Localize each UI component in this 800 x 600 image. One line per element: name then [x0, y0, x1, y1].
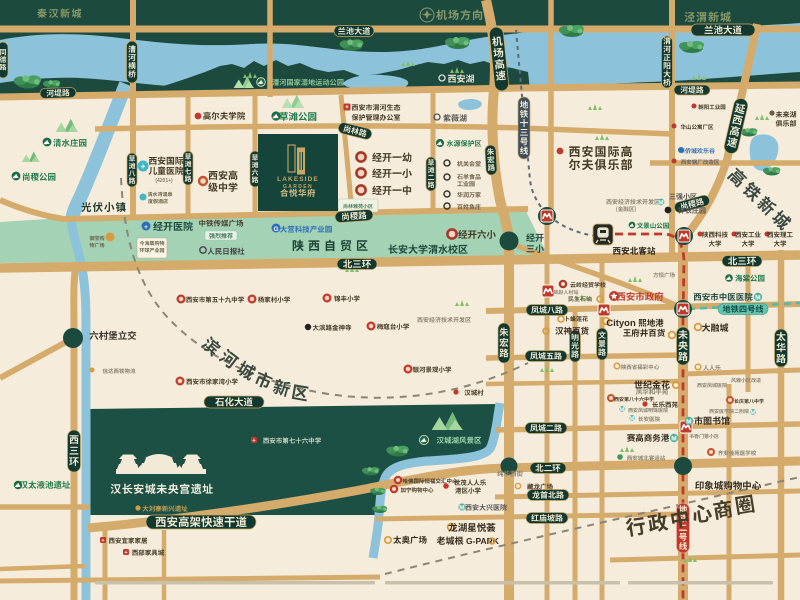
svg-text:M: M	[658, 199, 663, 206]
svg-text:G: G	[273, 226, 278, 233]
svg-text:M: M	[459, 504, 464, 511]
svg-text:+: +	[101, 538, 104, 544]
svg-text:M: M	[755, 294, 760, 301]
svg-text:+: +	[141, 162, 146, 171]
svg-text:+: +	[144, 224, 148, 231]
svg-text:+: +	[345, 104, 349, 111]
svg-text:GARDEN: GARDEN	[283, 184, 313, 190]
svg-text:LAKESIDE: LAKESIDE	[277, 176, 319, 183]
svg-text:M: M	[629, 415, 634, 422]
svg-text:M: M	[686, 418, 691, 425]
svg-text:M: M	[671, 435, 676, 442]
svg-text:+: +	[252, 438, 255, 444]
svg-text:+: +	[124, 550, 127, 556]
svg-text:Cityon: Cityon	[606, 318, 636, 329]
svg-text:M: M	[750, 409, 755, 416]
svg-text:M: M	[619, 406, 624, 413]
svg-text:(4201+): (4201+)	[155, 178, 173, 184]
